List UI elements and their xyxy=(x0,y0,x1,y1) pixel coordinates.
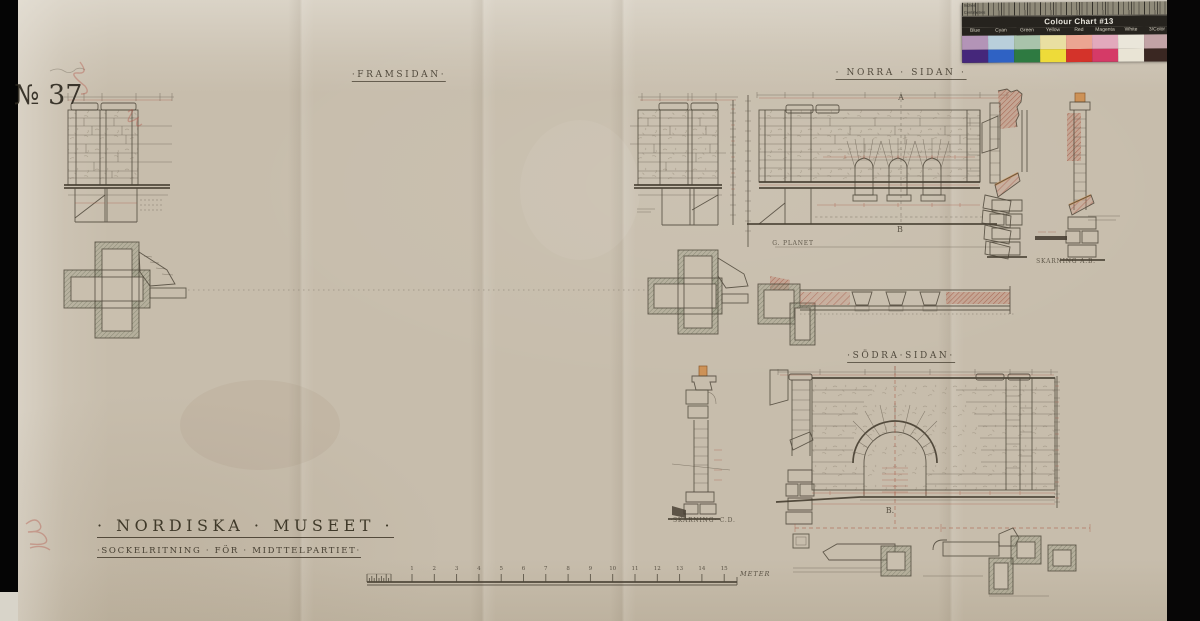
ruler-label-inches: Inches xyxy=(964,3,976,8)
scale-tick-label: 10 xyxy=(609,566,616,572)
swatch-column-label: Red xyxy=(1066,27,1092,35)
swatch-light xyxy=(1066,35,1092,49)
label-skarning-ab: SKÄRNING A.B. xyxy=(1036,258,1096,265)
swatch-dark xyxy=(1066,48,1092,62)
scan-backing-corner xyxy=(0,592,18,621)
scale-tick-label: 1 xyxy=(410,566,414,572)
swatch-light xyxy=(988,35,1014,49)
scale-tick-label: 14 xyxy=(698,566,705,572)
swatch-light xyxy=(1014,35,1040,49)
scan-black-edge-right xyxy=(1167,0,1200,621)
scale-tick-label: 6 xyxy=(522,566,526,572)
scale-tick-label: 5 xyxy=(499,566,503,572)
label-framsidan: ·FRAMSIDAN· xyxy=(352,70,446,82)
marker-b-north: B xyxy=(897,225,903,234)
swatch-column-label: Magenta xyxy=(1092,27,1118,35)
swatch-dark xyxy=(1040,49,1066,63)
scanned-drawing-sheet: № 37 ·FRAMSIDAN· · NORRA · SIDAN · ·SÖDR… xyxy=(0,0,1200,621)
scale-tick-label: 9 xyxy=(589,566,593,572)
swatch-dark xyxy=(1014,49,1040,63)
swatch-dark xyxy=(962,49,988,63)
label-sodra-sidan: ·SÖDRA·SIDAN· xyxy=(847,351,955,363)
label-skarning-cd: ·SKÄRNING· C.D. xyxy=(670,517,735,524)
swatch-light xyxy=(962,36,988,50)
swatch-light xyxy=(1092,35,1118,49)
swatch-column-label: Yellow xyxy=(1040,27,1066,35)
colour-chart-row-dark xyxy=(962,48,1196,63)
scale-tick-label: 12 xyxy=(654,566,661,572)
swatch-column-label: Blue xyxy=(962,28,988,36)
title-sockelritning: ·SOCKELRITNING · FÖR · MIDTTELPARTIET· xyxy=(97,546,361,558)
scale-bar-numbers: 123456789101112131415 xyxy=(365,566,745,578)
colour-chart: Inches Centimetres Colour Chart #13 Blue… xyxy=(962,1,1196,62)
scale-tick-label: 11 xyxy=(632,566,639,572)
label-planet: G. PLANET xyxy=(772,240,814,247)
scale-tick-label: 3 xyxy=(455,566,459,572)
scale-tick-label: 2 xyxy=(433,566,437,572)
swatch-dark xyxy=(1118,48,1144,62)
swatch-dark xyxy=(988,49,1014,63)
ruler-label-centimetres: Centimetres xyxy=(964,10,986,15)
swatch-column-label: Cyan xyxy=(988,27,1014,35)
marker-b-south: B. xyxy=(886,506,894,515)
scale-tick-label: 8 xyxy=(566,566,570,572)
scale-tick-label: 15 xyxy=(721,566,728,572)
swatch-light xyxy=(1118,35,1144,49)
colour-chart-ruler: Inches Centimetres xyxy=(962,1,1196,17)
scale-tick-label: 4 xyxy=(477,566,481,572)
marker-a-north: A xyxy=(898,93,904,102)
label-norra-sidan: · NORRA · SIDAN · xyxy=(836,68,967,80)
swatch-column-label: White xyxy=(1118,27,1144,35)
scale-tick-label: 7 xyxy=(544,566,548,572)
swatch-column-label: Green xyxy=(1014,27,1040,35)
swatch-light xyxy=(1040,35,1066,49)
swatch-dark xyxy=(1092,48,1118,62)
scale-tick-label: 13 xyxy=(676,566,683,572)
title-nordiska-museet: · NORDISKA · MUSEET · xyxy=(97,516,394,538)
sheet-number-stamp: № 37 xyxy=(14,80,83,111)
